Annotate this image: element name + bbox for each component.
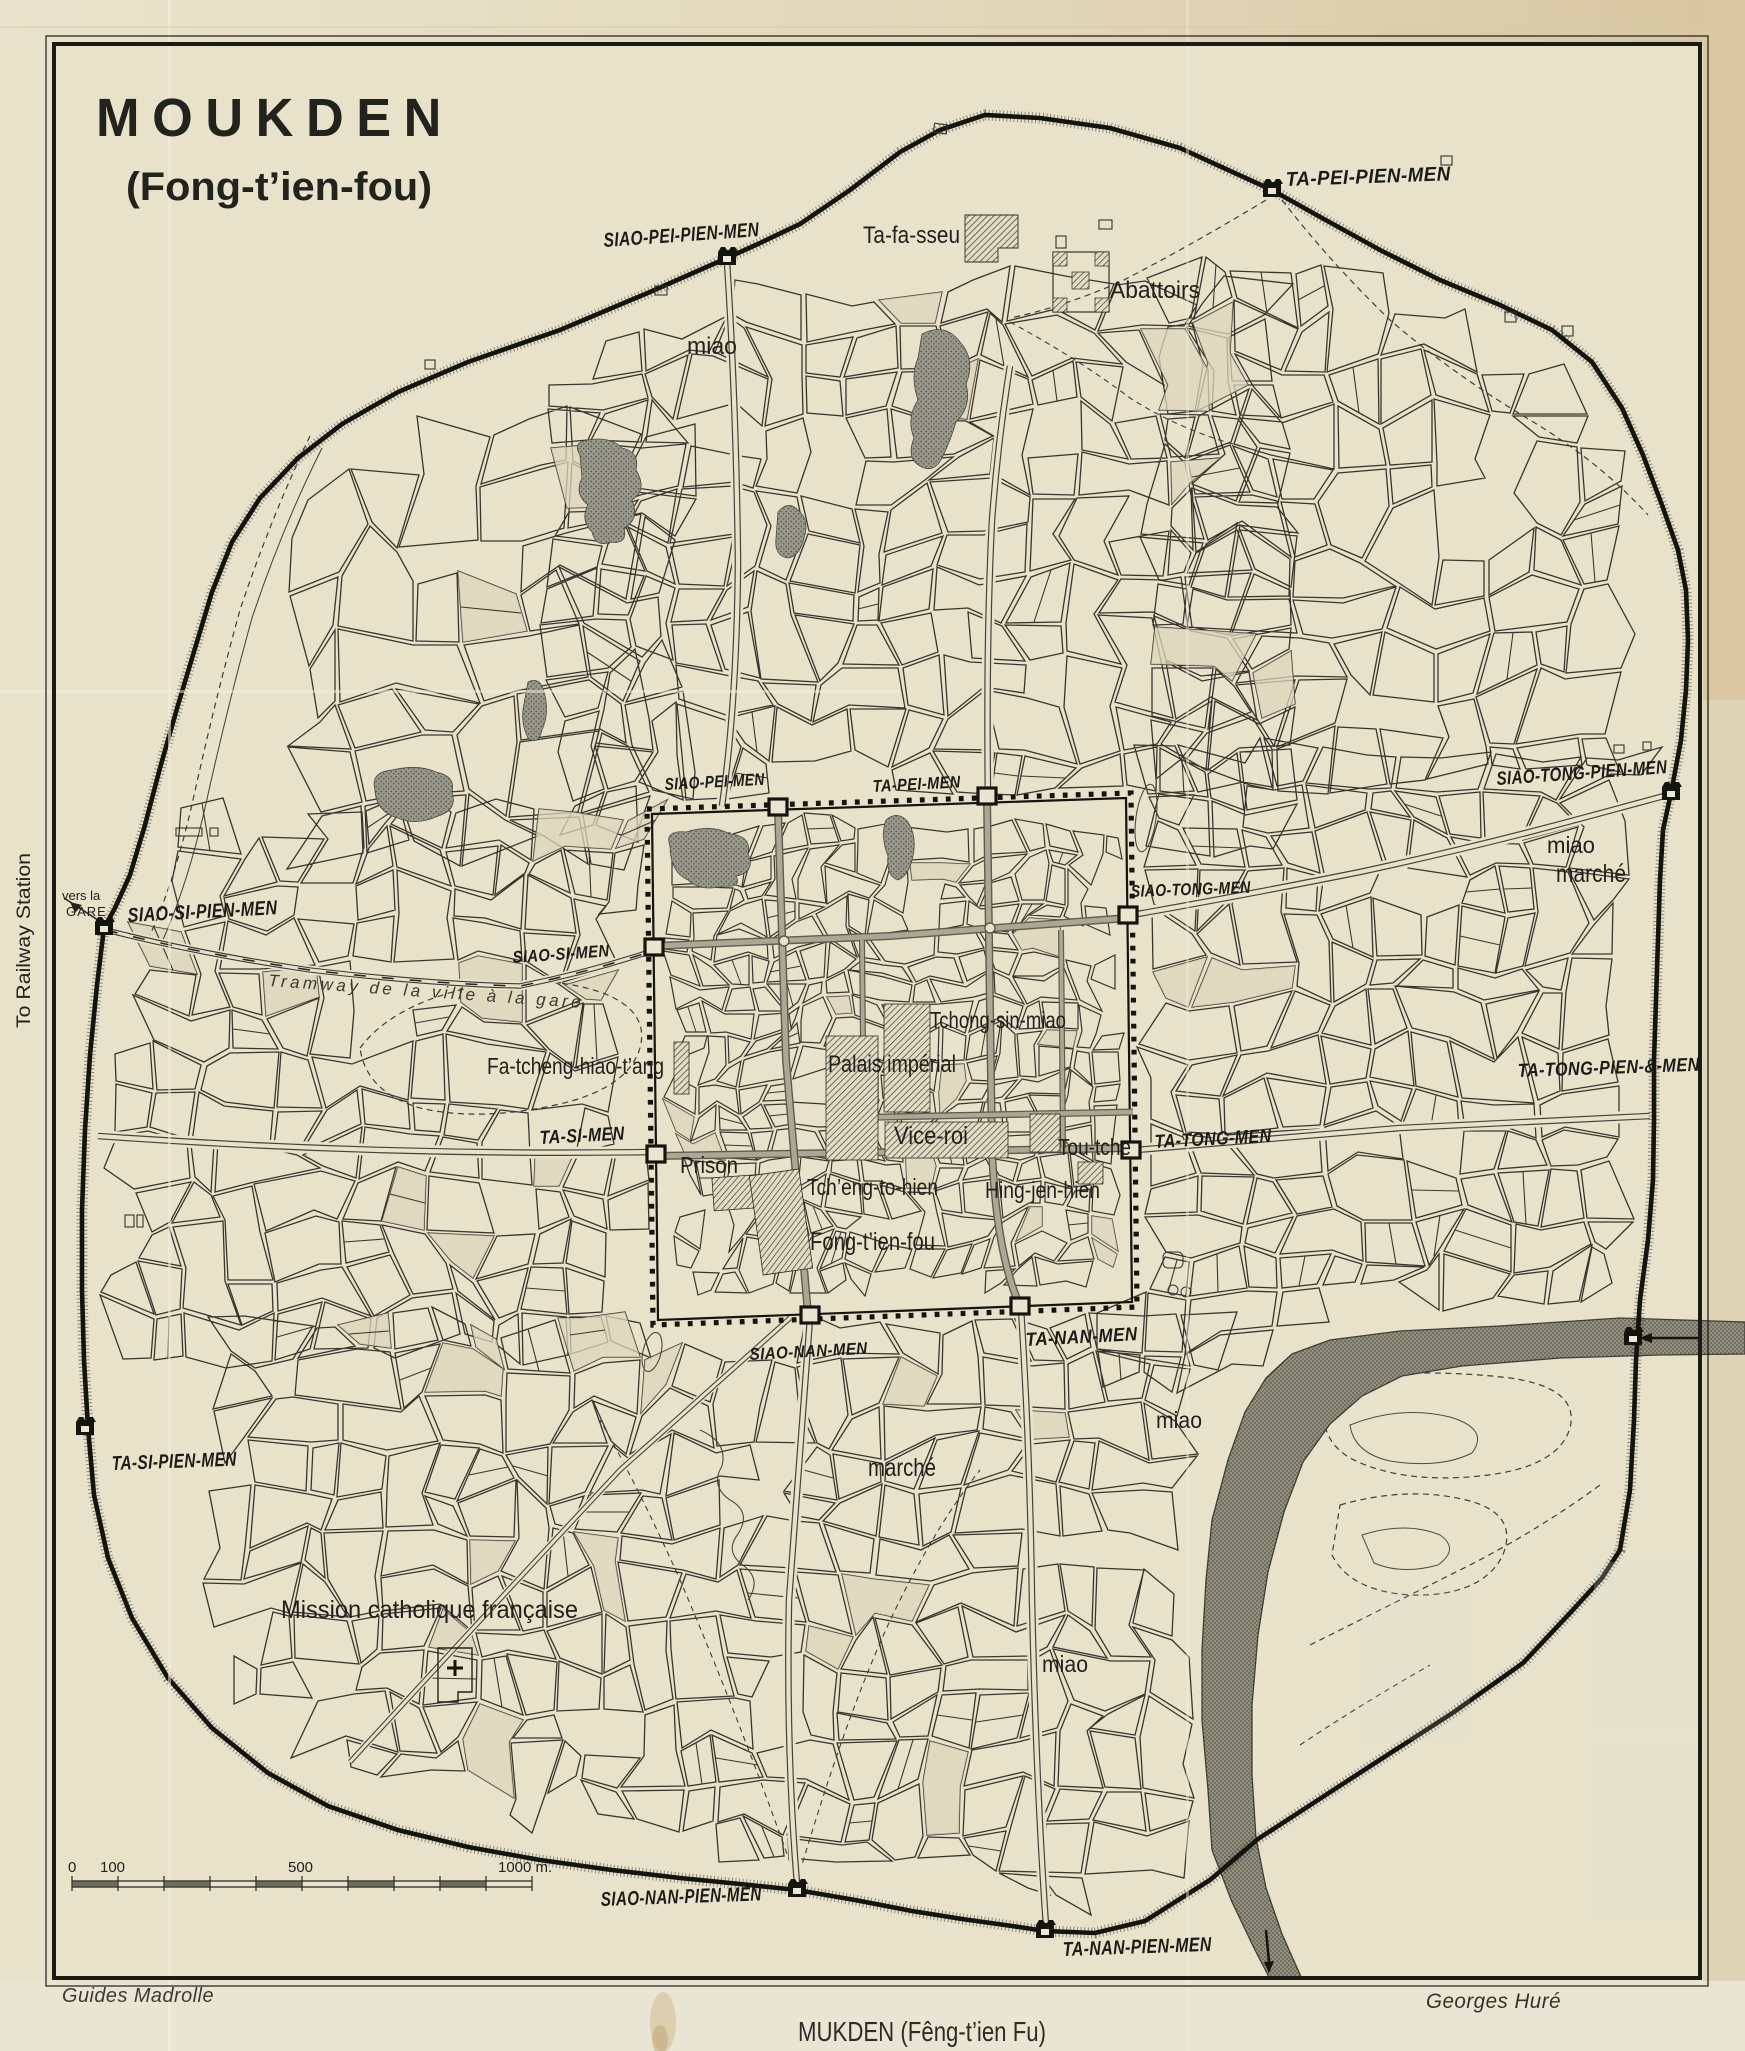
svg-text:(Fong-t’ien-fou): (Fong-t’ien-fou): [126, 165, 432, 209]
svg-text:Mission catholique française: Mission catholique française: [281, 1596, 578, 1624]
svg-text:Guides Madrolle: Guides Madrolle: [62, 1985, 214, 2007]
svg-text:miao: miao: [687, 333, 737, 360]
svg-text:Georges Huré: Georges Huré: [1426, 1990, 1561, 2013]
svg-text:TA-SI-MEN: TA-SI-MEN: [539, 1124, 626, 1149]
svg-text:Hing-jen-hien: Hing-jen-hien: [985, 1177, 1100, 1203]
svg-text:Fong-t’ien-fou: Fong-t’ien-fou: [810, 1228, 935, 1256]
svg-text:MUKDEN (Fêng-t’ien Fu): MUKDEN (Fêng-t’ien Fu): [798, 2016, 1046, 2047]
svg-text:vers la: vers la: [62, 888, 101, 903]
svg-text:Tou-tche: Tou-tche: [1058, 1134, 1131, 1160]
svg-text:MOUKDEN: MOUKDEN: [96, 88, 454, 148]
svg-text:100: 100: [100, 1859, 125, 1876]
svg-text:Palais impérial: Palais impérial: [828, 1051, 956, 1078]
svg-text:To Railway Station: To Railway Station: [14, 853, 35, 1028]
svg-text:Tch’eng-to-hien: Tch’eng-to-hien: [807, 1174, 938, 1200]
svg-text:miao: miao: [1547, 832, 1595, 858]
svg-text:0: 0: [68, 1859, 76, 1876]
svg-text:miao: miao: [1042, 1651, 1088, 1677]
svg-text:marché: marché: [868, 1454, 936, 1482]
svg-text:Vice-roi: Vice-roi: [894, 1122, 968, 1150]
svg-text:Fa-tcheng-hiao-t’ang: Fa-tcheng-hiao-t’ang: [487, 1053, 664, 1079]
svg-text:TA-SI-PIEN-MEN: TA-SI-PIEN-MEN: [111, 1449, 237, 1475]
svg-text:marché: marché: [1556, 860, 1626, 888]
svg-text:500: 500: [288, 1859, 313, 1876]
svg-text:miao: miao: [1156, 1407, 1202, 1433]
svg-text:1000 m.: 1000 m.: [498, 1859, 552, 1876]
svg-text:GARE: GARE: [66, 904, 107, 919]
svg-text:Ta-fa-sseu: Ta-fa-sseu: [863, 222, 960, 249]
svg-text:Tchong-sin-miao: Tchong-sin-miao: [930, 1007, 1066, 1033]
svg-text:Prison: Prison: [680, 1152, 738, 1178]
svg-text:Abattoirs: Abattoirs: [1110, 277, 1200, 304]
